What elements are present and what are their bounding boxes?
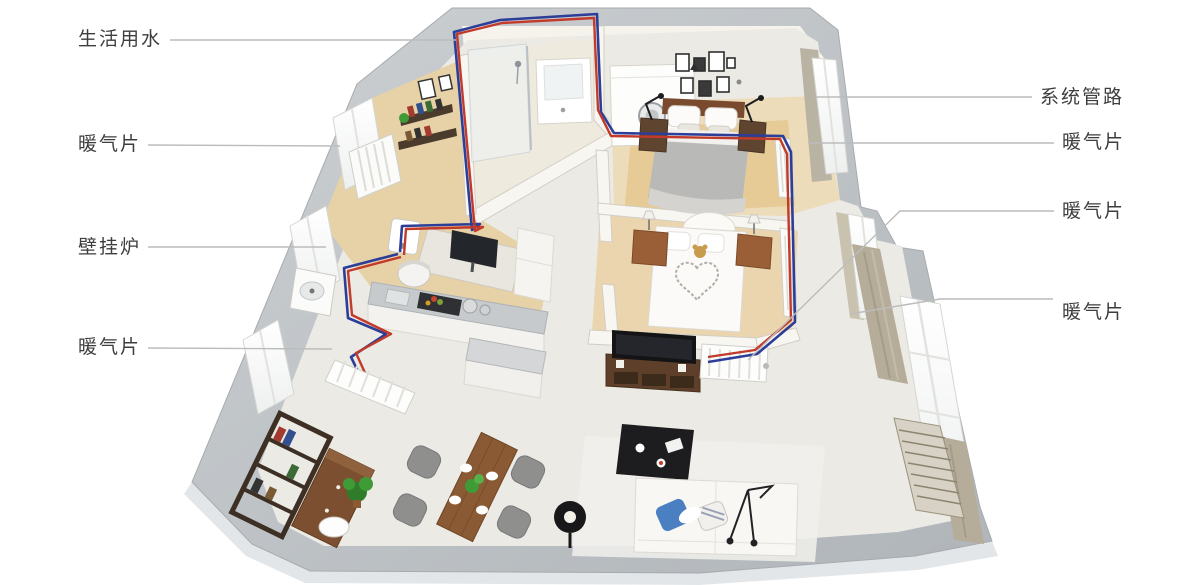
bathroom-vanity <box>536 58 592 124</box>
tv <box>612 330 696 364</box>
label-wall-boiler: 壁挂炉 <box>78 236 141 258</box>
heating-system-floorplan-figure: 生活用水 暖气片 壁挂炉 暖气片 系统管路 暖气片 暖气片 暖气片 <box>0 0 1200 585</box>
floorplan-illustration <box>0 0 1200 585</box>
coffee-table <box>616 424 694 480</box>
label-radiator-master-bedroom: 暖气片 <box>1062 131 1125 153</box>
label-radiator-kitchen: 暖气片 <box>78 336 141 358</box>
label-radiator-living-window: 暖气片 <box>1062 301 1125 323</box>
label-radiator-study: 暖气片 <box>78 133 141 155</box>
shower <box>468 44 531 162</box>
utility-sink <box>290 268 336 316</box>
fridge <box>514 228 554 302</box>
label-system-piping: 系统管路 <box>1040 86 1124 108</box>
label-radiator-living-tv: 暖气片 <box>1062 200 1125 222</box>
label-domestic-water: 生活用水 <box>78 28 162 50</box>
side-round-table <box>319 517 349 537</box>
sofa <box>634 478 798 556</box>
leader-radiator-study <box>148 145 340 146</box>
study-chair <box>398 261 430 287</box>
second-bedroom-bed <box>648 212 746 332</box>
